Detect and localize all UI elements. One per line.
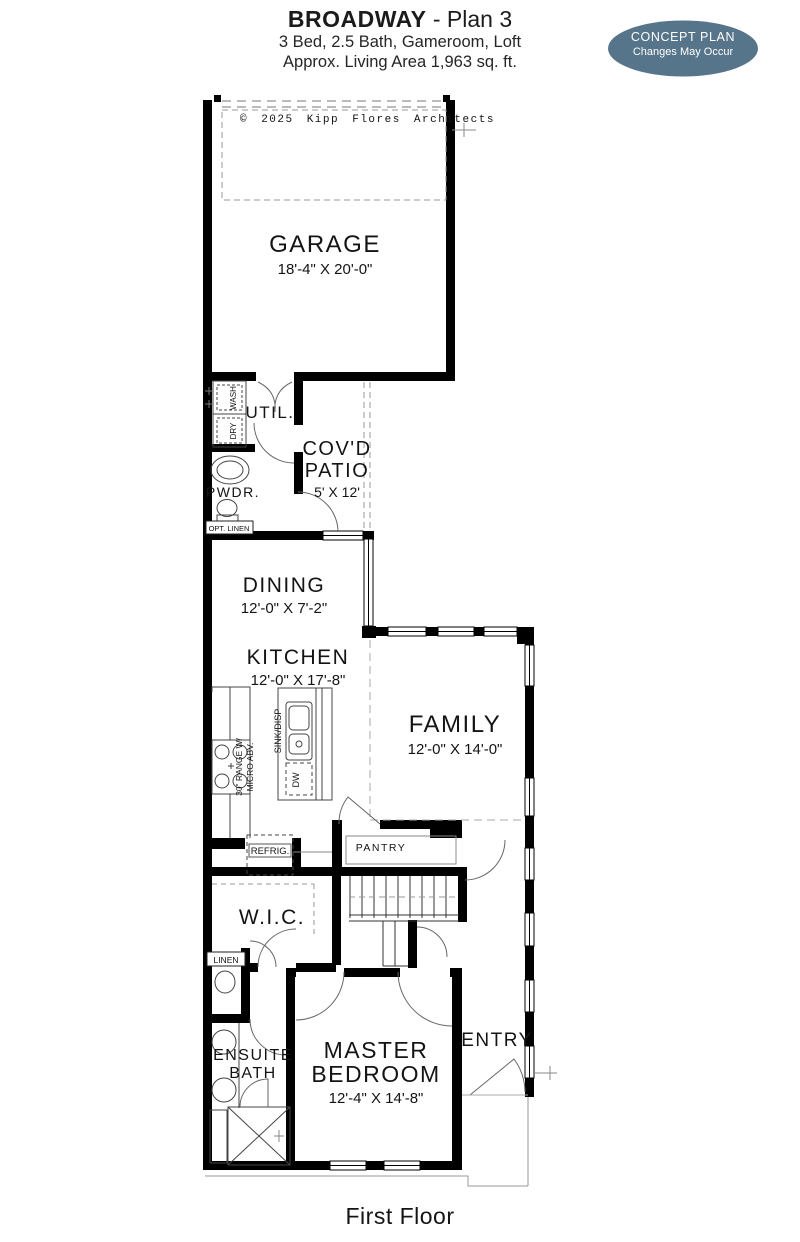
survey-mark-bottom [534, 1066, 557, 1080]
master-label-2: BEDROOM [311, 1061, 440, 1087]
floor-plan-drawing: © 2025 Kipp Flores Architects GARAGE 18'… [0, 0, 800, 1242]
family-dims: 12'-0" X 14'-0" [408, 741, 503, 758]
hall-family-door [465, 840, 505, 880]
plan-title-name: BROADWAY [288, 6, 427, 32]
range-label-2: MICRO ABV. [245, 743, 255, 792]
range-label-1: 30" RANGE W/ [234, 737, 244, 795]
shower [210, 1107, 290, 1165]
wic-label: W.I.C. [239, 906, 305, 929]
stair-hall-door [417, 927, 447, 957]
refrig-label: REFRIG. [251, 846, 290, 857]
linen-label: LINEN [213, 955, 238, 965]
badge-line1: CONCEPT PLAN [607, 30, 759, 46]
stairs [349, 876, 459, 966]
garage-label: GARAGE [269, 231, 381, 258]
kitchen-island [278, 688, 332, 800]
badge-text: CONCEPT PLAN Changes May Occur [607, 30, 759, 59]
wash-label: WASH [229, 386, 238, 410]
master-label-1: MASTER [324, 1037, 429, 1063]
shower-valve-icon [274, 1130, 284, 1142]
kitchen-dims: 12'-0" X 17'-8" [251, 672, 346, 689]
dining-label: DINING [243, 574, 326, 597]
ensuite-label-2: BATH [229, 1065, 276, 1082]
badge-line2: Changes May Occur [607, 46, 759, 60]
pwdr-label: PWDR. [206, 484, 260, 500]
entry-label: ENTRY [461, 1030, 533, 1051]
master-door [296, 972, 344, 1020]
powder-toilet [217, 500, 238, 523]
sink-label: SINK/DISP [273, 709, 283, 754]
patio-label-2: PATIO [305, 460, 370, 482]
shower-door [240, 1079, 268, 1107]
family-label: FAMILY [409, 711, 502, 738]
floor-name-label: First Floor [0, 1203, 800, 1230]
util-label: UTIL. [245, 403, 294, 422]
wic-door [258, 929, 296, 967]
powder-sink [211, 456, 249, 484]
dw-label: DW [291, 772, 301, 787]
ensuite-label-1: ENSUITE [213, 1047, 293, 1064]
opt-linen-label: OPT. LINEN [209, 524, 250, 533]
front-entry-door [470, 1059, 525, 1095]
pantry-label: PANTRY [356, 842, 407, 854]
dining-dims: 12'-0" X 7'-2" [241, 600, 327, 617]
concept-plan-badge: CONCEPT PLAN Changes May Occur [607, 20, 759, 77]
dry-label: DRY [229, 422, 238, 439]
util-hall-door [254, 423, 294, 463]
patio-label-1: COV'D [302, 438, 371, 460]
copyright-label: © 2025 Kipp Flores Architects [240, 114, 495, 126]
sink [286, 702, 312, 760]
floor-plan-page: BROADWAY - Plan 3 3 Bed, 2.5 Bath, Gamer… [0, 0, 800, 1242]
dashed-lines-layer [212, 101, 524, 935]
kitchen-label: KITCHEN [247, 646, 350, 669]
master-dims: 12'-4" X 14'-8" [329, 1090, 424, 1107]
garage-dims: 18'-4" X 20'-0" [278, 261, 373, 278]
bath-toilet [215, 971, 235, 993]
plan-title-variant: - Plan 3 [426, 6, 512, 32]
entry-master-door [398, 972, 452, 1026]
patio-dims: 5' X 12' [314, 484, 360, 500]
